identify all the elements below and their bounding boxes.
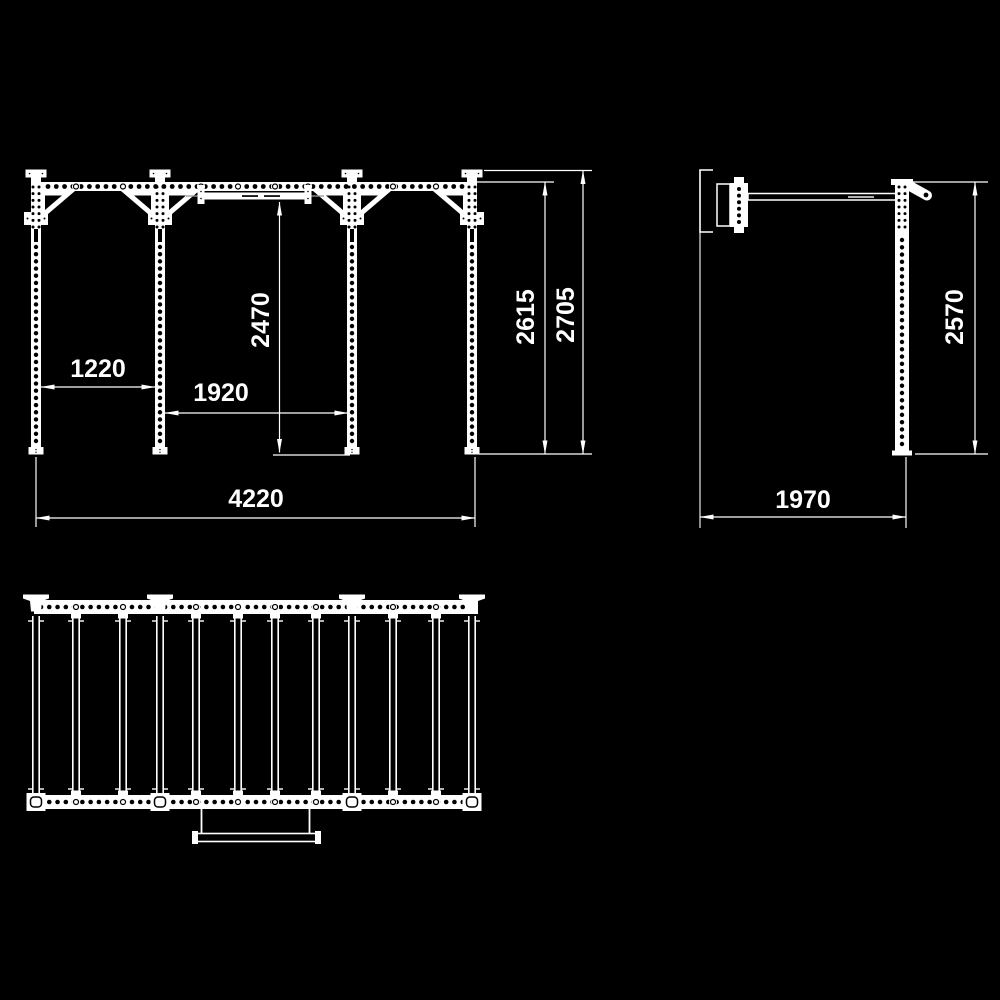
dim-label-center-bay: 1920: [193, 379, 249, 407]
background: [0, 0, 1000, 1000]
post-1: [31, 178, 41, 448]
dim-label-side-height: 2570: [941, 289, 969, 345]
post-cap: [342, 170, 363, 178]
dim-label-overall-width: 4220: [228, 485, 284, 513]
dim-label-bar-height: 2470: [247, 292, 275, 348]
dim-label-overall-height: 2705: [552, 287, 580, 343]
dim-label-left-bay: 1220: [70, 355, 126, 383]
post-foot: [345, 447, 360, 455]
post-cap: [26, 170, 47, 178]
technical-drawing-page: 1220 1920 2470 2615 2705 4220 2570 1970: [0, 0, 1000, 1000]
dim-label-beam-height: 2615: [512, 289, 540, 345]
post-foot: [465, 447, 480, 455]
dim-label-depth: 1970: [775, 486, 831, 514]
post-cap: [462, 170, 483, 178]
plan-post-foot: [151, 793, 170, 811]
post-2: [155, 178, 165, 448]
rig-technical-drawing: 1220 1920 2470 2615 2705 4220 2570 1970: [0, 0, 1000, 1000]
post-cap: [150, 170, 171, 178]
plan-post-foot: [27, 793, 46, 811]
plan-post-foot: [463, 793, 482, 811]
post-foot: [153, 447, 168, 455]
post-4: [467, 178, 477, 448]
post-foot: [29, 447, 44, 455]
side-post-foot: [892, 451, 912, 456]
plan-post-foot: [343, 793, 362, 811]
side-beam: [748, 194, 906, 201]
post-3: [347, 178, 357, 448]
